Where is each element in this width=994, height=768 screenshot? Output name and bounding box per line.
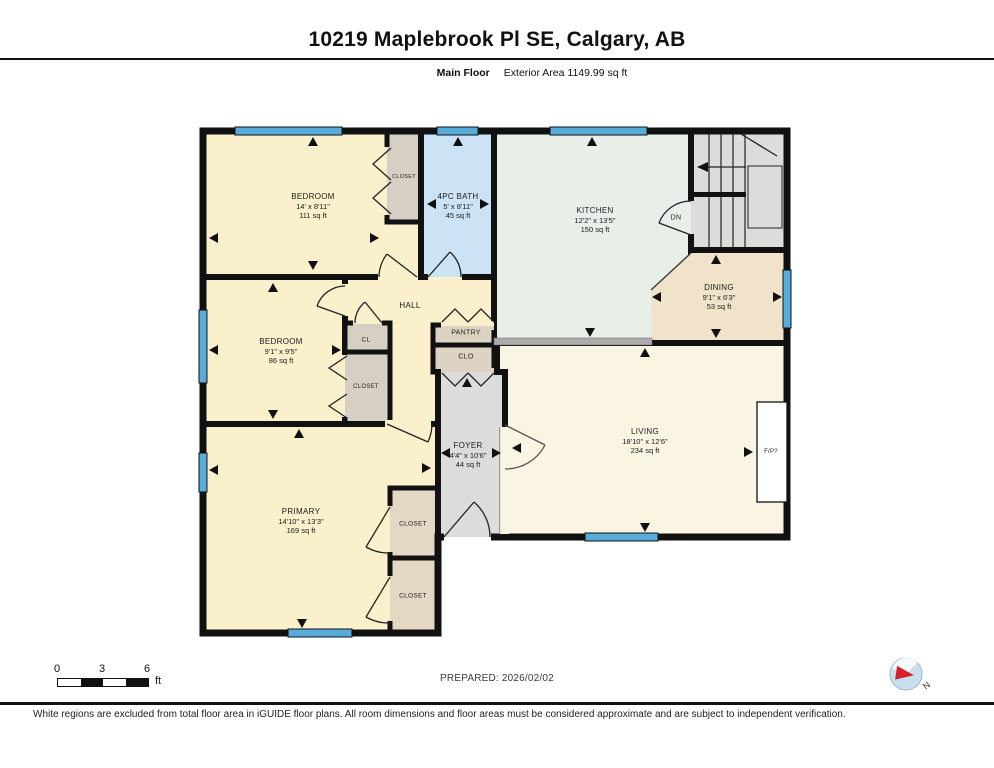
window-kitchen-top: [550, 127, 647, 135]
label-foyer: FOYER 4'4" x 10'6" 44 sq ft: [450, 441, 487, 469]
label-kitchen: KITCHEN 12'2" x 13'5" 150 sq ft: [574, 206, 615, 234]
label-cl: CL: [362, 337, 371, 344]
label-dining: DINING 9'1" x 6'3" 53 sq ft: [703, 283, 736, 311]
label-clo: CLO: [458, 354, 473, 361]
window-living-bottom: [585, 533, 658, 541]
room-stairwell: [691, 131, 787, 250]
label-dn: DN: [671, 215, 682, 222]
prepared-date: PREPARED: 2026/02/02: [0, 673, 994, 684]
label-pantry: PANTRY: [451, 330, 481, 337]
floor-plan-drawing: [0, 0, 994, 768]
label-fireplace: F/P?: [764, 449, 778, 455]
floor-plan-page: 10219 Maplebrook Pl SE, Calgary, AB Main…: [0, 0, 994, 768]
label-closet-bedroom1: CLOSET: [392, 174, 416, 180]
compass-icon: N: [876, 650, 948, 702]
footer-divider: [0, 702, 994, 705]
label-bedroom1: BEDROOM 14' x 8'11" 111 sq ft: [291, 192, 334, 220]
disclaimer-text: White regions are excluded from total fl…: [33, 709, 974, 720]
label-closet-bedroom2: CLOSET: [353, 384, 379, 390]
window-bath-top: [437, 127, 478, 135]
label-closet-primary-1: CLOSET: [399, 521, 427, 528]
label-bath: 4PC BATH 5' x 8'11" 45 sq ft: [438, 192, 479, 220]
kitchen-railing: [494, 338, 652, 345]
window-primary-left: [199, 453, 207, 492]
window-bedroom2-left: [199, 310, 207, 383]
window-dining-right: [783, 270, 791, 328]
label-living: LIVING 18'10" x 12'6" 234 sq ft: [622, 427, 667, 455]
label-hall: HALL: [399, 301, 420, 311]
window-bedroom1-top: [235, 127, 342, 135]
label-primary: PRIMARY 14'10" x 13'3" 169 sq ft: [278, 507, 323, 535]
window-primary-bottom: [288, 629, 352, 637]
label-bedroom2: BEDROOM 9'1" x 9'5" 86 sq ft: [259, 337, 302, 365]
label-closet-primary-2: CLOSET: [399, 593, 427, 600]
compass-north-label: N: [921, 680, 932, 692]
